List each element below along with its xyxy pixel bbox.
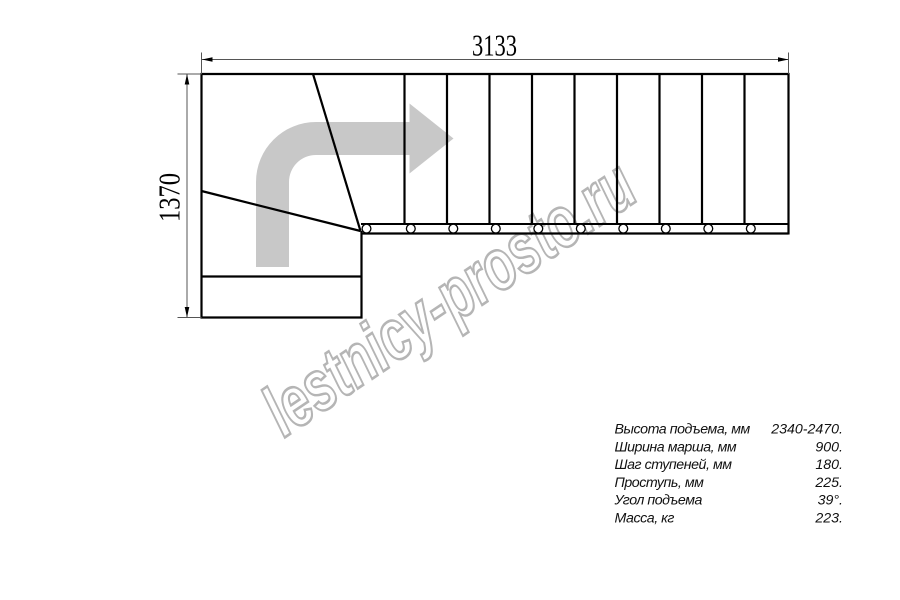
svg-text:Высота подъема, мм: Высота подъема, мм <box>615 422 751 438</box>
svg-text:Проступь, мм: Проступь, мм <box>615 475 705 491</box>
svg-text:1370: 1370 <box>152 173 187 222</box>
svg-text:lestnicy-prosto.ru: lestnicy-prosto.ru <box>248 145 650 451</box>
svg-text:3133: 3133 <box>472 27 517 62</box>
svg-text:900.: 900. <box>815 439 843 455</box>
svg-text:225.: 225. <box>814 475 843 491</box>
svg-text:2340-2470.: 2340-2470. <box>770 422 843 438</box>
svg-text:Ширина марша, мм: Ширина марша, мм <box>615 439 737 455</box>
svg-text:180.: 180. <box>815 457 843 473</box>
svg-text:Масса, кг: Масса, кг <box>615 510 675 526</box>
svg-text:223.: 223. <box>814 510 843 526</box>
svg-text:39°.: 39°. <box>818 493 843 509</box>
svg-text:Угол подъема: Угол подъема <box>614 493 703 509</box>
svg-text:Шаг ступеней, мм: Шаг ступеней, мм <box>615 457 733 473</box>
